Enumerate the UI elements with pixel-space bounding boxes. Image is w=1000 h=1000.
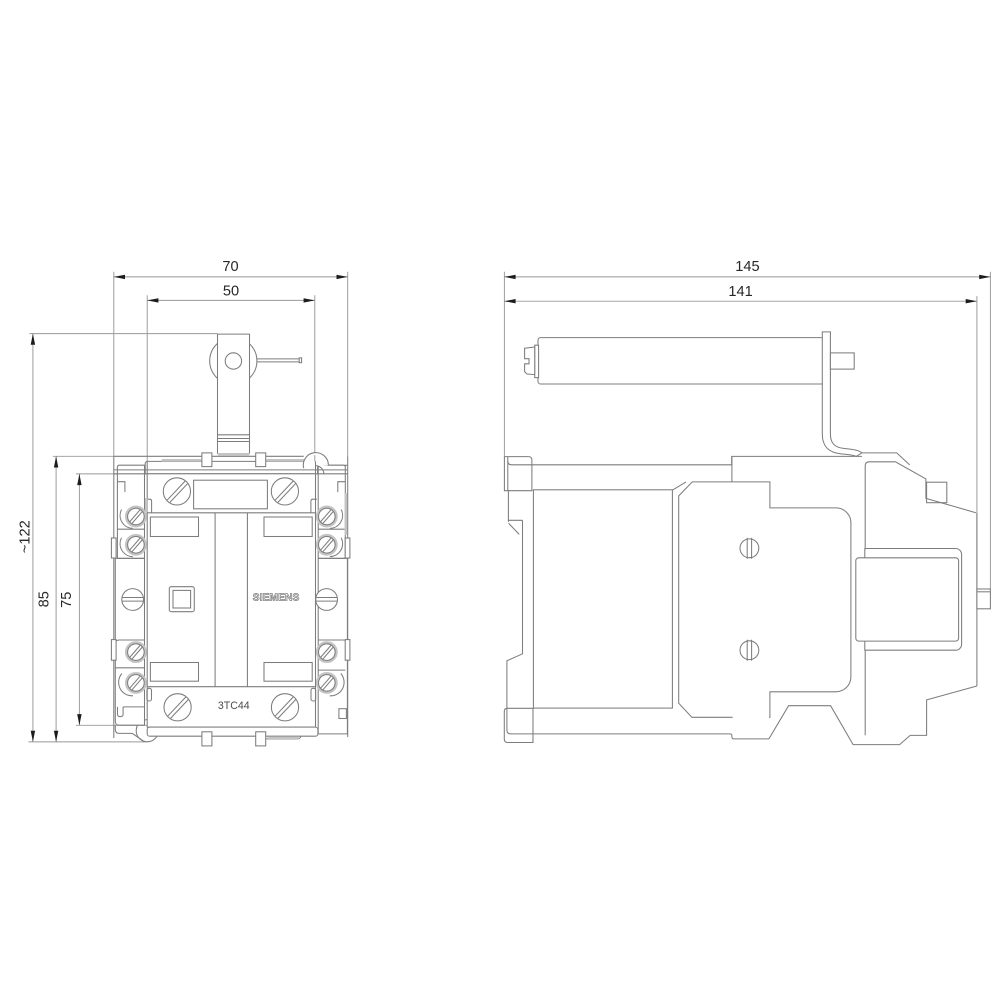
svg-text:3TC44: 3TC44 <box>218 700 250 712</box>
svg-text:145: 145 <box>735 259 759 275</box>
svg-text:141: 141 <box>728 284 752 300</box>
svg-text:~122: ~122 <box>17 520 33 553</box>
svg-text:50: 50 <box>223 284 239 300</box>
svg-text:70: 70 <box>222 259 238 275</box>
svg-text:75: 75 <box>59 592 75 608</box>
svg-text:SIEMENS: SIEMENS <box>253 593 300 604</box>
svg-text:85: 85 <box>37 591 53 607</box>
